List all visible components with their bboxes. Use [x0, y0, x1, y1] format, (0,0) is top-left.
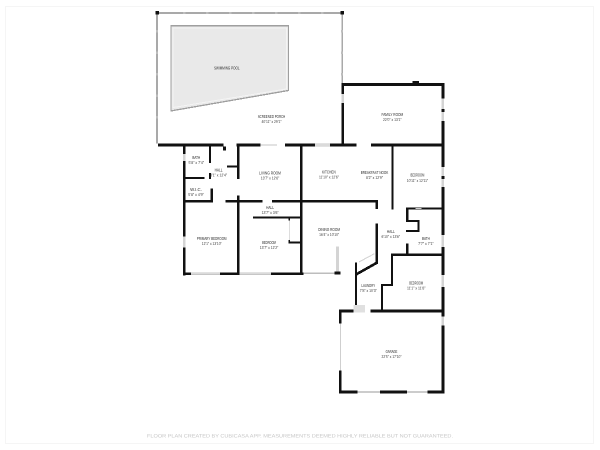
- svg-text:12’1” x 13’10”: 12’1” x 13’10”: [202, 241, 222, 246]
- svg-text:8’2” x 12’9”: 8’2” x 12’9”: [366, 175, 384, 180]
- svg-text:13’7” x 12’2”: 13’7” x 12’2”: [260, 245, 279, 250]
- svg-text:40’11” x 29’1”: 40’11” x 29’1”: [262, 119, 282, 124]
- svg-text:FLOOR PLAN CREATED BY CUBICASA: FLOOR PLAN CREATED BY CUBICASA APP. MEAS…: [147, 433, 453, 439]
- svg-text:11’1” x 11’8”: 11’1” x 11’8”: [407, 285, 426, 290]
- svg-text:22’0” x 13’1”: 22’0” x 13’1”: [383, 117, 402, 122]
- svg-text:3’1” x 12’4”: 3’1” x 12’4”: [210, 173, 228, 178]
- svg-text:10’11” x 12’11”: 10’11” x 12’11”: [407, 178, 429, 183]
- svg-text:11’10” x 12’6”: 11’10” x 12’6”: [319, 175, 339, 180]
- svg-text:13’7” x 12’6”: 13’7” x 12’6”: [261, 176, 280, 181]
- svg-text:7’8” x 10’3”: 7’8” x 10’3”: [360, 288, 378, 293]
- svg-text:5’8” x 7’4”: 5’8” x 7’4”: [189, 160, 205, 165]
- svg-text:22’5” x 17’10”: 22’5” x 17’10”: [382, 354, 402, 359]
- svg-text:13’7” x 3’6”: 13’7” x 3’6”: [262, 210, 280, 215]
- svg-text:7’7” x 7’1”: 7’7” x 7’1”: [418, 241, 434, 246]
- svg-text:5’8” x 4’9”: 5’8” x 4’9”: [188, 192, 204, 197]
- svg-text:6’10” x 13’6”: 6’10” x 13’6”: [382, 234, 401, 239]
- svg-text:16’4” x 10’10”: 16’4” x 10’10”: [319, 232, 339, 237]
- svg-text:SWIMMING POOL: SWIMMING POOL: [214, 66, 240, 71]
